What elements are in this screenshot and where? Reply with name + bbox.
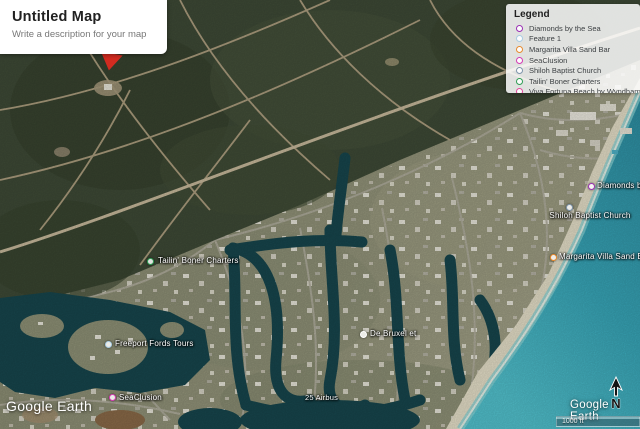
scale-bar: 1000 ft (556, 416, 640, 427)
map-title[interactable]: Untitled Map (12, 9, 155, 25)
map-label: 25 Airbus (305, 393, 338, 402)
map-label: SeaClusion (119, 393, 162, 402)
legend-dot-icon (516, 78, 523, 85)
map-label: De Bruxel et (370, 329, 416, 338)
legend-item-tailin[interactable]: Tailin' Boner Charters (514, 76, 640, 87)
google-earth-screenshot: { "map_card": { "title": "Untitled Map",… (0, 0, 640, 429)
marker-dot[interactable] (109, 394, 116, 401)
legend-item-viva-fortuna[interactable]: Viva Fortuna Beach by Wyndham, A? (514, 87, 640, 93)
marker-dot[interactable] (105, 341, 112, 348)
scale-bar-label: 1000 ft (562, 418, 583, 425)
marker-dot[interactable] (566, 204, 573, 211)
legend-dot-icon (516, 57, 523, 64)
map-description-placeholder[interactable]: Write a description for your map (12, 29, 155, 40)
legend-title: Legend (514, 9, 640, 20)
map-label: Diamonds by the Sea (597, 181, 640, 190)
legend-item-seaclusion[interactable]: SeaClusion (514, 55, 640, 66)
legend-item-margarita[interactable]: Margarita Villa Sand Bar (514, 44, 640, 55)
map-label: Shiloh Baptist Church (549, 211, 630, 220)
legend-panel: Legend Diamonds by the Sea Feature 1 Mar… (506, 4, 640, 93)
legend-dot-icon (516, 25, 523, 32)
marker-dot[interactable] (588, 183, 595, 190)
north-letter: N (611, 396, 620, 411)
google-earth-watermark-left: Google Earth (6, 398, 92, 414)
legend-dot-icon (516, 46, 523, 53)
map-label: Margarita Villa Sand Bar (559, 252, 640, 261)
north-compass-indicator[interactable]: N (604, 376, 628, 412)
map-label: Freeport Fords Tours (115, 339, 194, 348)
north-arrow-icon (610, 377, 622, 396)
legend-dot-icon (516, 35, 523, 42)
marker-dot[interactable] (550, 254, 557, 261)
marker-dot[interactable] (360, 331, 367, 338)
map-title-card[interactable]: Untitled Map Write a description for you… (0, 0, 167, 54)
legend-item-shiloh[interactable]: Shiloh Baptist Church (514, 65, 640, 76)
marker-dot[interactable] (147, 258, 154, 265)
legend-item-diamonds[interactable]: Diamonds by the Sea (514, 23, 640, 34)
map-label: Tailin' Boner Charters (158, 256, 239, 265)
legend-dot-icon (516, 67, 523, 74)
legend-item-feature1[interactable]: Feature 1 (514, 34, 640, 45)
legend-dot-icon (516, 88, 523, 93)
